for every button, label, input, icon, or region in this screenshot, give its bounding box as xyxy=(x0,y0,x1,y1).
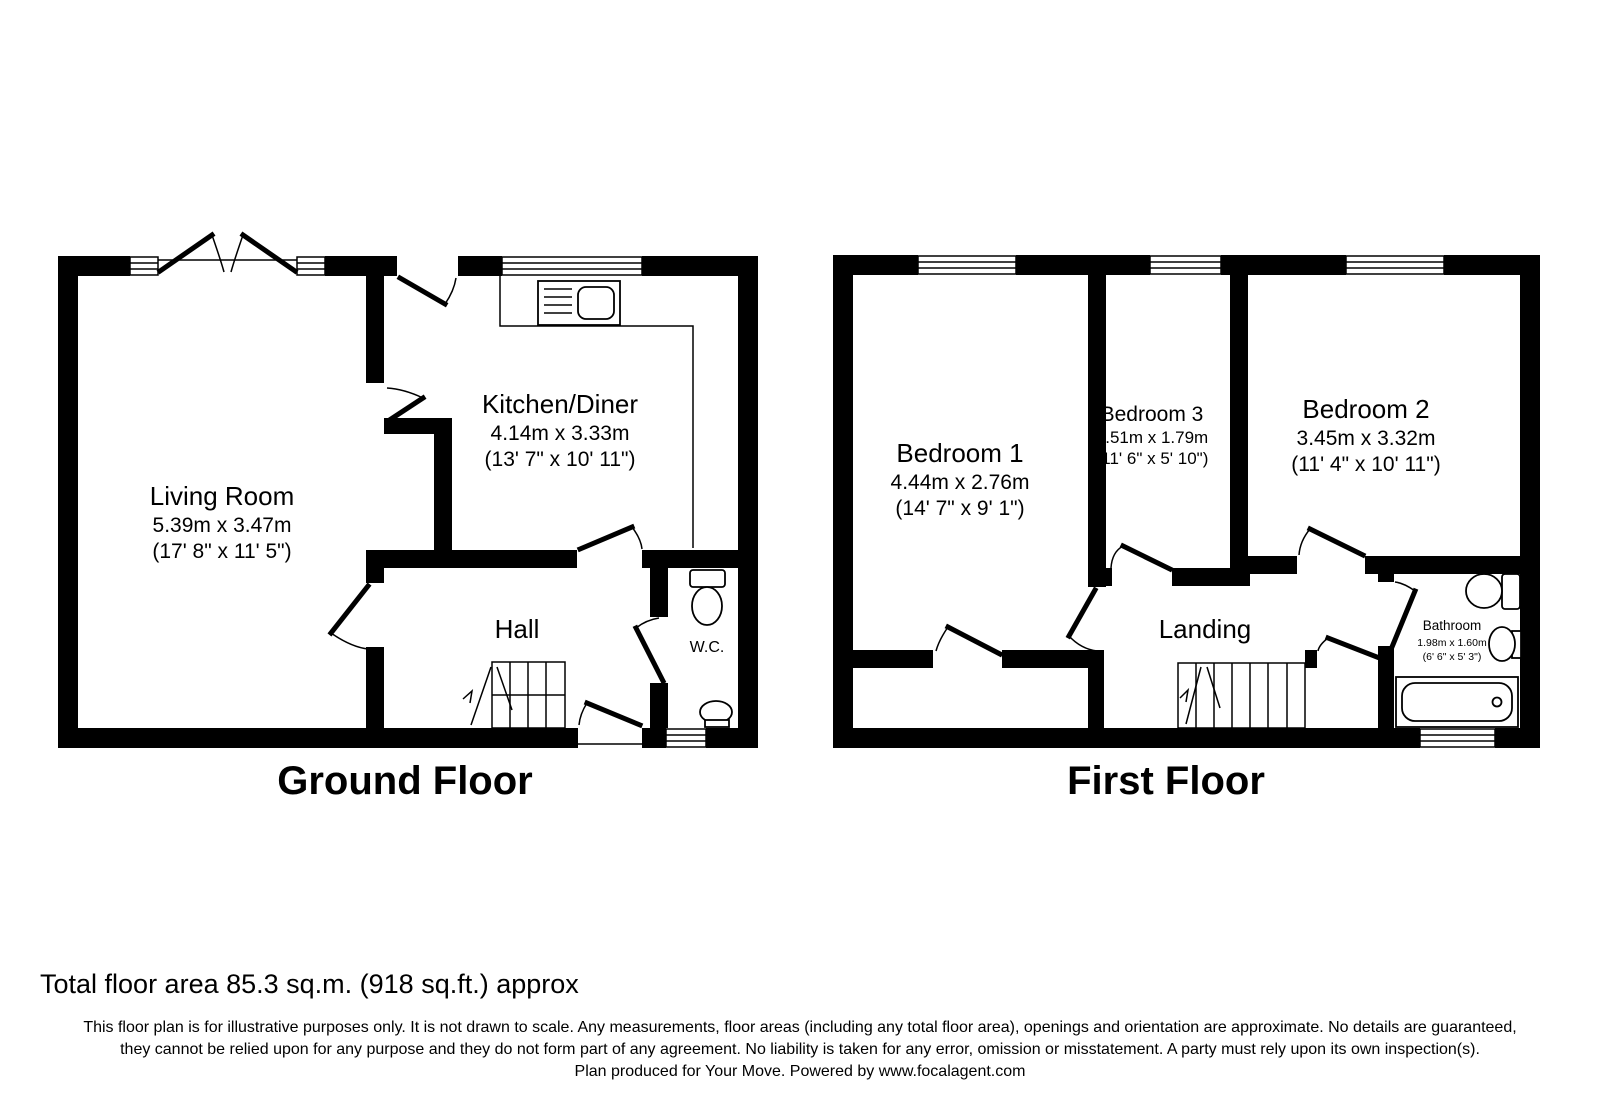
wall xyxy=(642,550,738,568)
bedroom2-metric: 3.45m x 3.32m xyxy=(1297,427,1436,450)
floorplan-page: Living Room 5.39m x 3.47m (17' 8" x 11' … xyxy=(0,0,1600,1120)
bathroom-door-icon xyxy=(1392,582,1415,647)
hall-label: Hall xyxy=(495,614,540,644)
wall xyxy=(1230,275,1248,568)
kitchen-sink-icon xyxy=(578,287,614,319)
wall xyxy=(1495,728,1540,748)
wall xyxy=(738,256,758,748)
floorplan-drawing: Living Room 5.39m x 3.47m (17' 8" x 11' … xyxy=(0,0,1600,1120)
bathroom-toilet-icon xyxy=(1466,574,1520,609)
disclaimer-line-3: Plan produced for Your Move. Powered by … xyxy=(575,1063,1026,1080)
bedroom1-window-icon xyxy=(918,256,1016,274)
wall xyxy=(1365,556,1520,574)
disclaimer-line-1: This floor plan is for illustrative purp… xyxy=(83,1019,1516,1036)
french-door-icon xyxy=(158,235,297,272)
bathroom-window-icon xyxy=(1420,729,1495,747)
wall xyxy=(434,434,452,552)
bedroom3-window-icon xyxy=(1150,256,1221,274)
bedroom2-imperial: (11' 4" x 10' 11") xyxy=(1291,453,1440,476)
wall xyxy=(1378,574,1394,582)
bathroom-basin-icon xyxy=(1489,627,1521,661)
wc-door-icon xyxy=(636,618,663,681)
living-room-door-icon xyxy=(331,586,368,649)
first-floor-stairs-icon xyxy=(1178,663,1305,728)
wall xyxy=(833,728,1420,748)
wc-basin-icon xyxy=(700,701,732,727)
wc-window-icon xyxy=(666,729,706,747)
wall xyxy=(1305,650,1317,668)
wall xyxy=(458,256,502,276)
wc-label: W.C. xyxy=(690,639,725,656)
first-floor-title: First Floor xyxy=(1067,759,1265,803)
wall xyxy=(650,683,668,728)
bedroom2-window-icon xyxy=(1346,256,1444,274)
living-room-window-icon xyxy=(130,257,158,275)
disclaimer-line-2: they cannot be relied upon for any purpo… xyxy=(120,1041,1480,1058)
bedroom3-door-icon xyxy=(1111,546,1170,569)
wall xyxy=(366,550,577,568)
bedroom3-imperial: (11' 6" x 5' 10") xyxy=(1096,449,1209,468)
kitchen-metric: 4.14m x 3.33m xyxy=(491,422,630,445)
footer: Total floor area 85.3 sq.m. (918 sq.ft.)… xyxy=(40,969,1517,1080)
living-room-imperial: (17' 8" x 11' 5") xyxy=(152,540,291,563)
bathroom-metric: 1.98m x 1.60m xyxy=(1417,637,1487,649)
ground-floor-title: Ground Floor xyxy=(277,759,533,803)
bathroom-imperial: (6' 6" x 5' 3") xyxy=(1423,651,1482,663)
wall xyxy=(1094,568,1112,586)
wall xyxy=(642,728,666,748)
front-door-icon xyxy=(578,703,642,744)
wall xyxy=(853,650,933,668)
bathtub-icon xyxy=(1396,677,1518,727)
wall xyxy=(1221,255,1346,275)
closet-door-icon xyxy=(387,388,423,421)
wall xyxy=(1016,255,1150,275)
wall xyxy=(1172,568,1250,586)
wall xyxy=(1248,556,1297,574)
bathroom-label: Bathroom xyxy=(1423,618,1482,633)
living-room-label: Living Room xyxy=(150,481,295,511)
bedroom1-label: Bedroom 1 xyxy=(896,438,1023,468)
landing-label: Landing xyxy=(1159,614,1252,644)
ground-floor-stairs-icon xyxy=(463,662,565,728)
wall xyxy=(650,568,668,617)
kitchen-window-icon xyxy=(502,257,642,275)
total-floor-area: Total floor area 85.3 sq.m. (918 sq.ft.)… xyxy=(40,969,579,999)
landing-door-icon xyxy=(1318,638,1377,657)
kitchen-imperial: (13' 7" x 10' 11") xyxy=(485,448,636,471)
wall xyxy=(366,276,384,383)
wall xyxy=(1520,255,1540,748)
wall xyxy=(58,728,578,748)
kitchen-door-icon xyxy=(580,527,642,549)
kitchen-label: Kitchen/Diner xyxy=(482,389,638,419)
wall xyxy=(1378,646,1394,728)
living-room-window-icon xyxy=(297,257,325,275)
wall xyxy=(833,255,853,748)
bedroom1-door-icon xyxy=(1069,590,1097,651)
first-floor-plan: Bedroom 1 4.44m x 2.76m (14' 7" x 9' 1")… xyxy=(833,255,1540,803)
bedroom1-metric: 4.44m x 2.76m xyxy=(891,471,1030,494)
bedroom3-metric: 3.51m x 1.79m xyxy=(1096,428,1208,447)
wall xyxy=(1088,650,1104,728)
bedroom3-label: Bedroom 3 xyxy=(1101,403,1204,426)
kitchen-back-door-icon xyxy=(400,278,456,304)
ground-floor-plan: Living Room 5.39m x 3.47m (17' 8" x 11' … xyxy=(58,235,758,803)
bedroom1-storage-door-icon xyxy=(936,627,1000,654)
bedroom2-door-icon xyxy=(1299,529,1363,555)
wall xyxy=(325,256,397,276)
wall xyxy=(1002,650,1088,668)
wall xyxy=(58,256,78,748)
living-room-metric: 5.39m x 3.47m xyxy=(153,514,292,537)
bedroom2-label: Bedroom 2 xyxy=(1302,394,1429,424)
wall xyxy=(366,647,384,728)
wc-toilet-icon xyxy=(690,570,725,625)
wall xyxy=(706,728,758,748)
bedroom1-imperial: (14' 7" x 9' 1") xyxy=(895,497,1024,520)
wall xyxy=(384,418,452,434)
